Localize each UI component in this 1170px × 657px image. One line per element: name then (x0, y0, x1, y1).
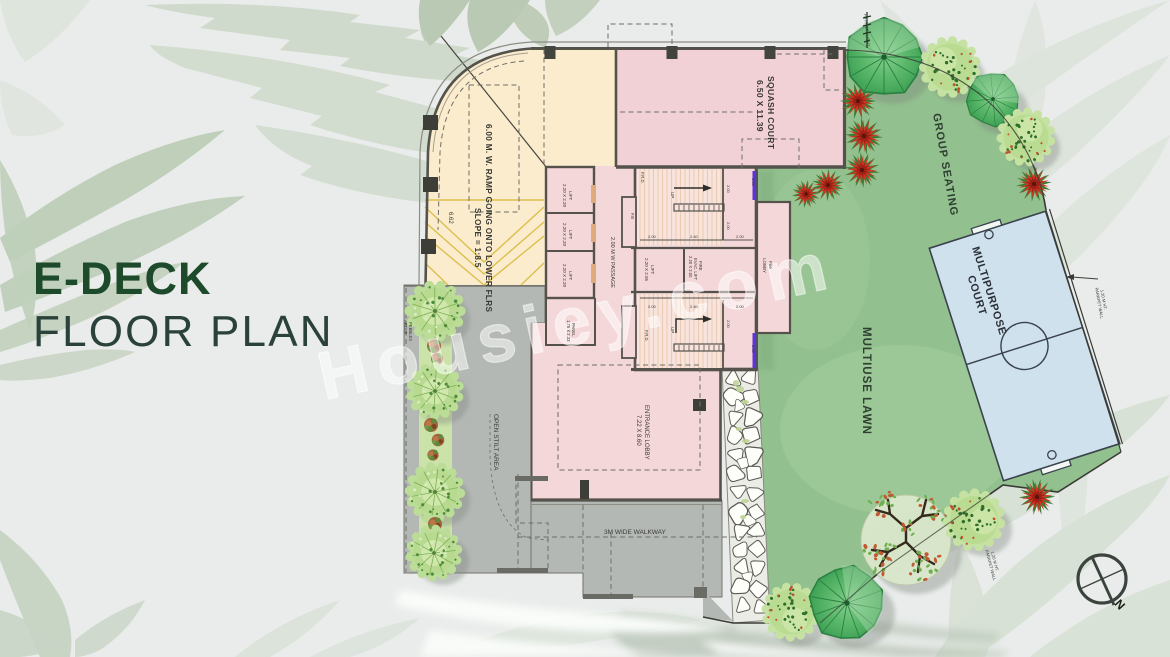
svg-text:UP: UP (670, 192, 675, 198)
svg-text:2.00: 2.00 (726, 320, 731, 329)
svg-text:F.B: F.B (630, 213, 635, 219)
svg-text:2.20 X 2.20: 2.20 X 2.20 (562, 184, 567, 208)
svg-text:6.62: 6.62 (447, 212, 453, 224)
svg-text:2.20 X 2.20: 2.20 X 2.20 (562, 264, 567, 288)
svg-text:ABOVE: ABOVE (403, 320, 408, 335)
svg-text:7.22 X 8.60: 7.22 X 8.60 (635, 415, 641, 446)
svg-text:1.75 X 2.33: 1.75 X 2.33 (566, 320, 571, 342)
svg-text:2.40: 2.40 (690, 304, 699, 309)
svg-text:6.00 M. W. RAMP GOING ONTO LOW: 6.00 M. W. RAMP GOING ONTO LOWER FLRS (484, 124, 493, 312)
svg-text:6.50 X 11.39: 6.50 X 11.39 (755, 80, 765, 132)
svg-text:F.R.D.: F.R.D. (640, 172, 645, 184)
svg-text:2.00: 2.00 (726, 222, 731, 231)
svg-text:MULTIUSE LAWN: MULTIUSE LAWN (860, 327, 872, 435)
svg-text:2.00: 2.00 (736, 304, 745, 309)
svg-text:F.R.D.: F.R.D. (644, 330, 649, 342)
svg-text:ENTRANCE LOBBY: ENTRANCE LOBBY (643, 405, 649, 460)
svg-text:LOBBY: LOBBY (762, 258, 767, 273)
svg-text:2.20 X 2.00: 2.20 X 2.00 (688, 256, 693, 278)
svg-text:SLOPE = 1:8.5: SLOPE = 1:8.5 (473, 208, 482, 268)
svg-text:2.00: 2.00 (648, 234, 657, 239)
svg-text:SQUASH COURT: SQUASH COURT (766, 76, 776, 150)
svg-text:2.20 X 2.95: 2.20 X 2.95 (644, 258, 649, 282)
svg-text:2.00: 2.00 (751, 345, 756, 354)
svg-text:2.00: 2.00 (726, 185, 731, 194)
svg-text:LIFT: LIFT (568, 191, 573, 201)
svg-text:Fire: Fire (768, 261, 773, 269)
svg-text:2.00: 2.00 (648, 304, 657, 309)
svg-text:2.20 X 2.20: 2.20 X 2.20 (562, 223, 567, 247)
svg-text:UP: UP (670, 327, 675, 333)
svg-text:2.00: 2.00 (736, 234, 745, 239)
svg-text:2.00: 2.00 (751, 178, 756, 187)
svg-text:2.40: 2.40 (690, 234, 699, 239)
svg-text:LIFT: LIFT (568, 230, 573, 240)
svg-text:LIFT: LIFT (650, 265, 655, 275)
svg-text:2.00 M W PASSAGE: 2.00 M W PASSAGE (609, 237, 615, 288)
svg-text:3M WIDE WALKWAY: 3M WIDE WALKWAY (604, 529, 667, 536)
svg-text:LIFT: LIFT (568, 271, 573, 281)
svg-text:OPEN STILT AREA: OPEN STILT AREA (492, 414, 499, 471)
